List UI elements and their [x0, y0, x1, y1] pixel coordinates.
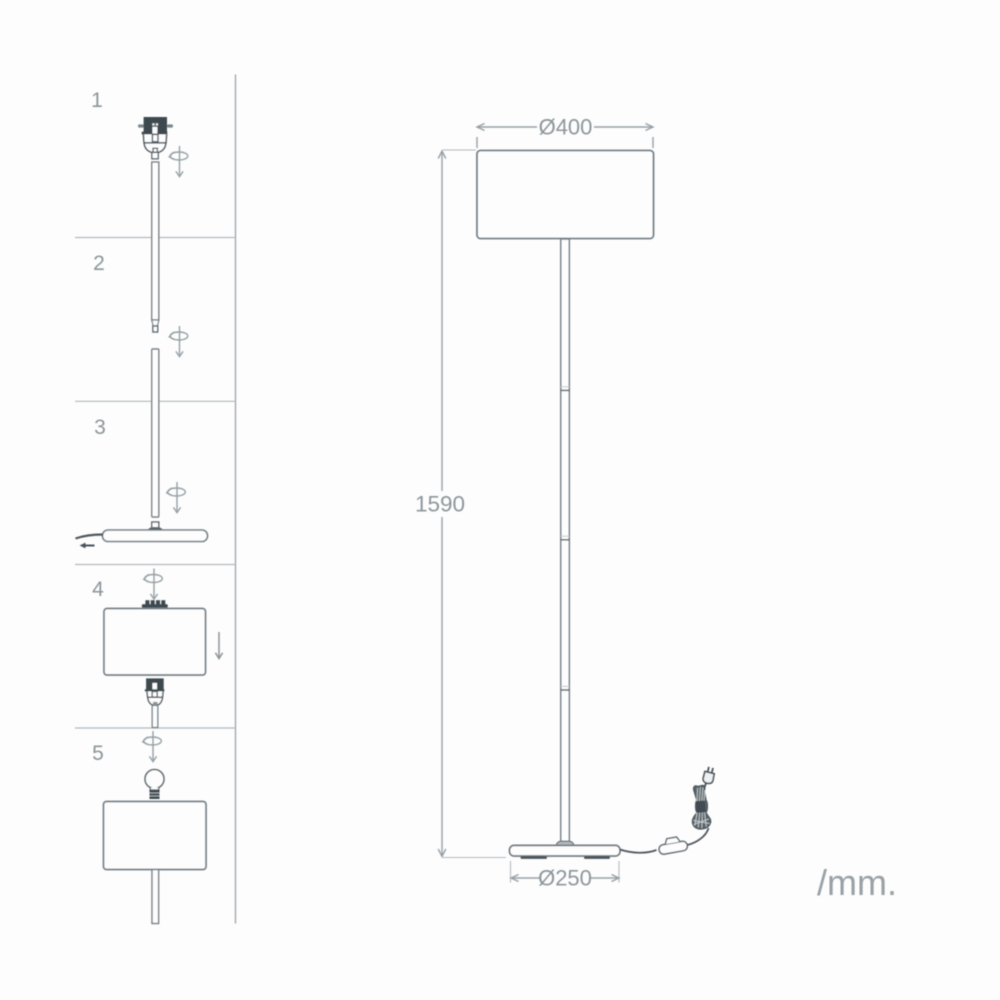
svg-text:1590: 1590 [415, 492, 465, 517]
svg-text:2: 2 [93, 252, 105, 275]
svg-text:5: 5 [92, 742, 104, 765]
svg-text:Ø250: Ø250 [538, 866, 592, 891]
svg-text:Ø400: Ø400 [539, 115, 593, 140]
svg-text:1: 1 [91, 89, 103, 112]
svg-text:3: 3 [94, 416, 106, 439]
svg-text:4: 4 [92, 578, 104, 601]
svg-text:/mm.: /mm. [817, 862, 897, 903]
